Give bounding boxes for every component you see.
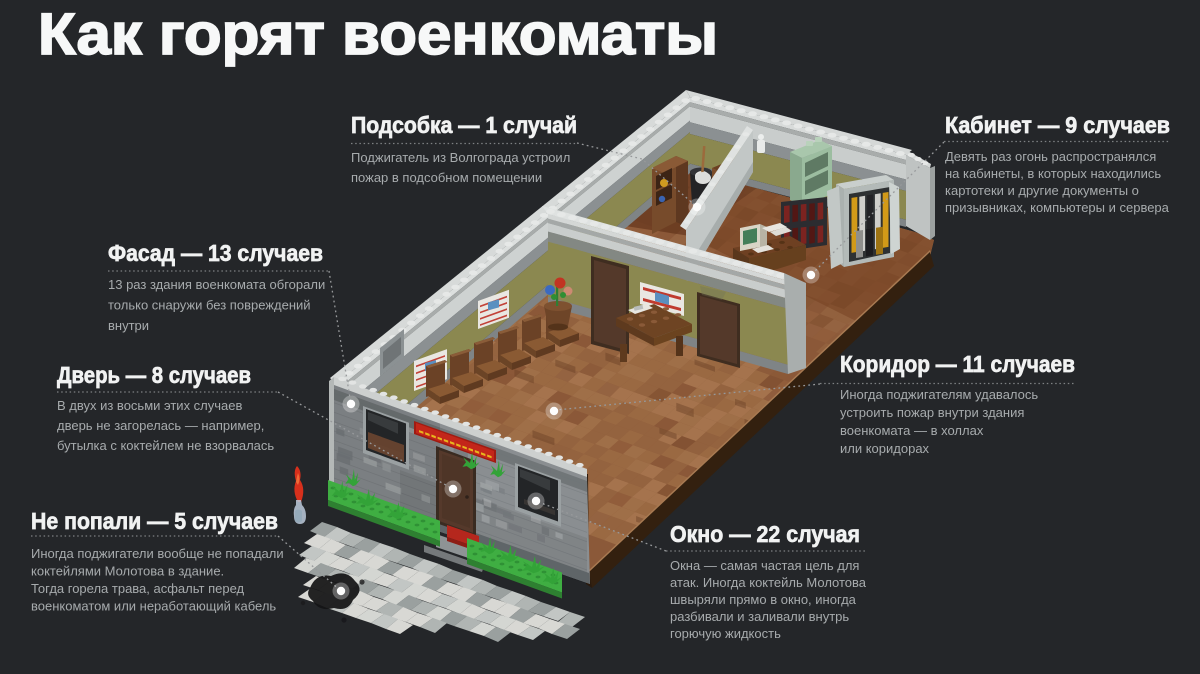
svg-text:Дверь — 8 случаев: Дверь — 8 случаев [57,362,251,388]
svg-text:на кабинеты, в которых находил: на кабинеты, в которых находились [945,166,1161,181]
svg-text:военкоматом или неработающий к: военкоматом или неработающий кабель [31,599,276,614]
svg-text:Подсобка — 1 случай: Подсобка — 1 случай [351,112,577,138]
svg-text:горючую жидкость: горючую жидкость [670,626,781,641]
svg-text:Коридор — 11 случаев: Коридор — 11 случаев [840,351,1075,377]
svg-text:Иногда поджигателям удавалось: Иногда поджигателям удавалось [840,387,1038,402]
svg-text:швыряли прямо в окно, иногда: швыряли прямо в окно, иногда [670,592,857,607]
svg-text:только снаружи без повреждений: только снаружи без повреждений [108,298,311,313]
svg-text:пожар в подсобном помещении: пожар в подсобном помещении [351,170,542,185]
svg-text:дверь не загорелась — например: дверь не загорелась — например, [57,418,264,433]
svg-text:военкомата — в холлах: военкомата — в холлах [840,423,984,438]
svg-text:Окна — самая частая цель для: Окна — самая частая цель для [670,558,859,573]
svg-text:устроить пожар внутри здания: устроить пожар внутри здания [840,405,1024,420]
svg-text:Как горят военкоматы: Как горят военкоматы [38,2,718,67]
svg-text:коктейлями Молотова в здание.: коктейлями Молотова в здание. [31,564,224,579]
svg-text:разбивали и заливали внутрь: разбивали и заливали внутрь [670,609,849,624]
svg-text:В двух из восьми этих случаев: В двух из восьми этих случаев [57,398,243,413]
svg-text:внутри: внутри [108,318,149,333]
svg-text:Не попали — 5 случаев: Не попали — 5 случаев [31,508,278,534]
svg-text:или коридорах: или коридорах [840,441,930,456]
svg-text:Фасад — 13 случаев: Фасад — 13 случаев [108,240,323,266]
svg-text:атак. Иногда коктейль Молотова: атак. Иногда коктейль Молотова [670,575,867,590]
svg-text:призывниках, компьютеры и серв: призывниках, компьютеры и сервера [945,200,1170,215]
svg-text:бутылка с коктейлем не взорвал: бутылка с коктейлем не взорвалась [57,438,274,453]
svg-text:13 раз здания военкомата обгор: 13 раз здания военкомата обгорали [108,277,325,292]
svg-text:Иногда поджигатели вообще не п: Иногда поджигатели вообще не попадали [31,546,284,561]
svg-text:Кабинет — 9 случаев: Кабинет — 9 случаев [945,112,1170,138]
svg-text:картотеки и другие документы о: картотеки и другие документы о [945,183,1139,198]
svg-text:Поджигатель из Волгограда устр: Поджигатель из Волгограда устроил [351,150,570,165]
svg-text:Тогда горела трава, асфальт пе: Тогда горела трава, асфальт перед [31,581,245,596]
svg-text:Окно — 22 случая: Окно — 22 случая [670,521,860,547]
svg-text:Девять раз огонь распространял: Девять раз огонь распространялся [945,149,1156,164]
